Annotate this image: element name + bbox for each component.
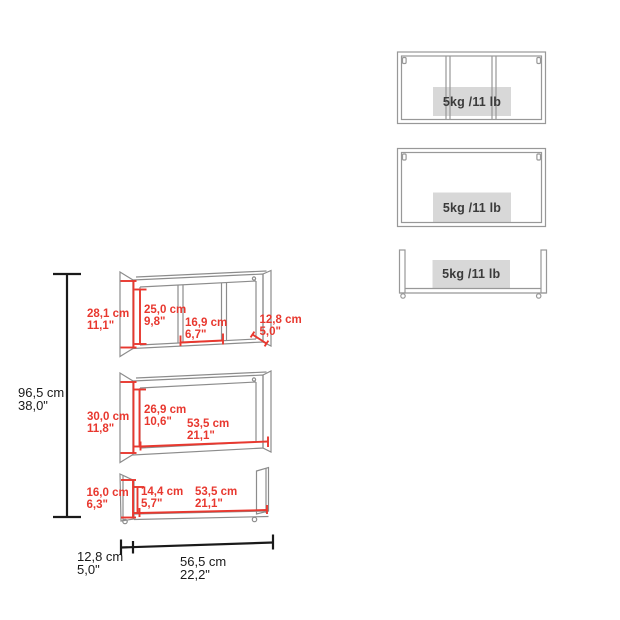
shelf-top-inner-height-label: 25,0 cm 9,8"	[144, 304, 186, 328]
shelf-top-depth-label: 12,8 cm 5,0"	[260, 314, 302, 338]
product-dimension-diagram: 5kg /11 lb 5kg /11 lb 5kg /11 lb 96,5 cm…	[0, 0, 620, 620]
base-dimension-line	[121, 535, 273, 556]
shelf-bottom-inner-height-label: 14,4 cm 5,7"	[141, 486, 183, 510]
shelf-top-compartment-width-label: 16,9 cm 6,7"	[185, 317, 227, 341]
shelf-top-outer-height-label: 28,1 cm 11,1"	[87, 308, 129, 332]
base-width-label: 56,5 cm 22,2"	[180, 555, 226, 581]
capacity-boxes	[433, 87, 512, 289]
shelf-middle-inner-height-label: 26,9 cm 10,6"	[144, 404, 186, 428]
base-depth-label: 12,8 cm 5,0"	[77, 550, 123, 576]
shelf-middle-outer-height-label: 30,0 cm 11,8"	[87, 411, 129, 435]
shelf-bottom-outer-height-label: 16,0 cm 6,3"	[87, 487, 129, 511]
shelf-middle-drawing	[120, 371, 271, 463]
capacity-label-ledge-shelf: 5kg /11 lb	[433, 260, 511, 289]
capacity-label-divided-shelf: 5kg /11 lb	[433, 87, 511, 116]
total-height-label: 96,5 cm 38,0"	[18, 386, 64, 412]
shelf-middle-inner-width-label: 53,5 cm 21,1"	[187, 418, 229, 442]
capacity-label-frame-shelf: 5kg /11 lb	[433, 193, 511, 223]
shelf-bottom-inner-width-label: 53,5 cm 21,1"	[195, 486, 237, 510]
